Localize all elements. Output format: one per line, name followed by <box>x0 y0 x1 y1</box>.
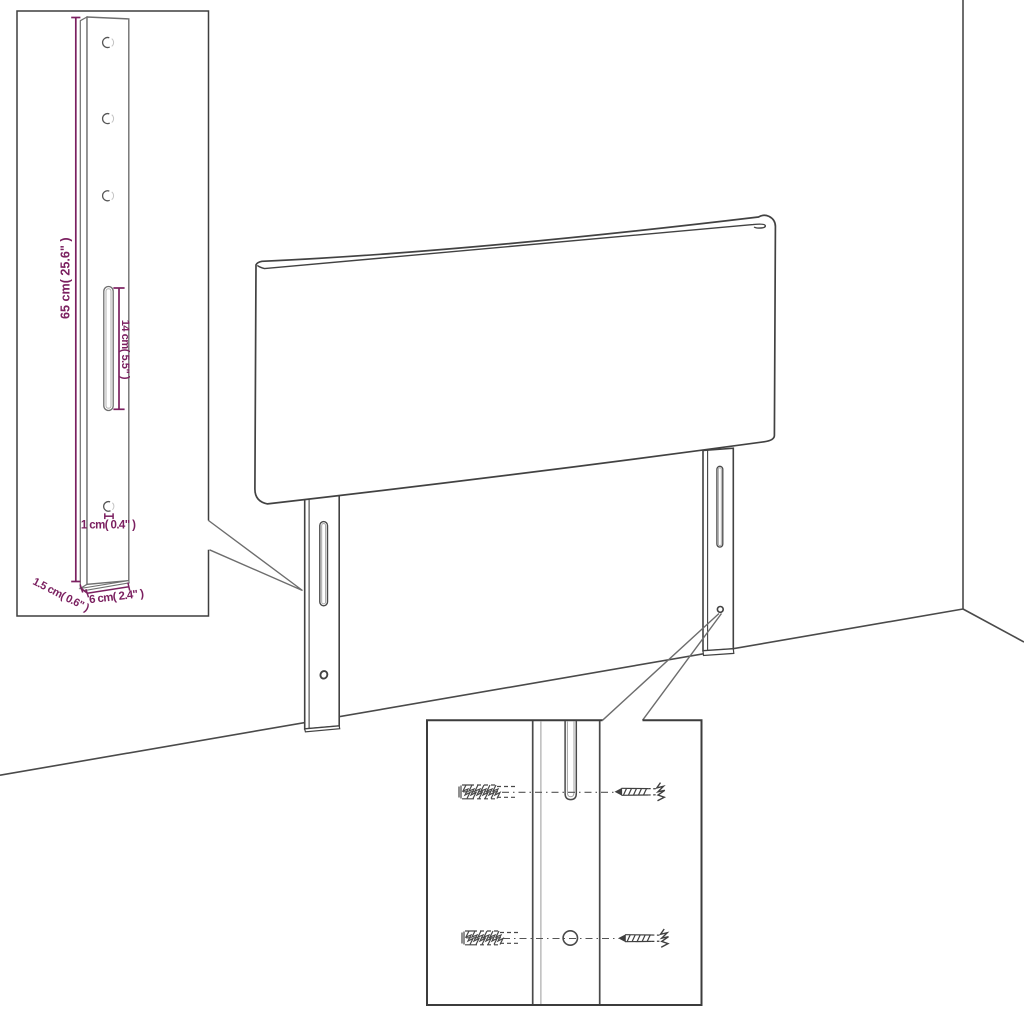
svg-text:65 cm( 25.6" ): 65 cm( 25.6" ) <box>58 237 72 319</box>
svg-text:1 cm( 0.4" ): 1 cm( 0.4" ) <box>81 520 136 532</box>
svg-text:14 cm( 5.5" ): 14 cm( 5.5" ) <box>119 320 131 380</box>
